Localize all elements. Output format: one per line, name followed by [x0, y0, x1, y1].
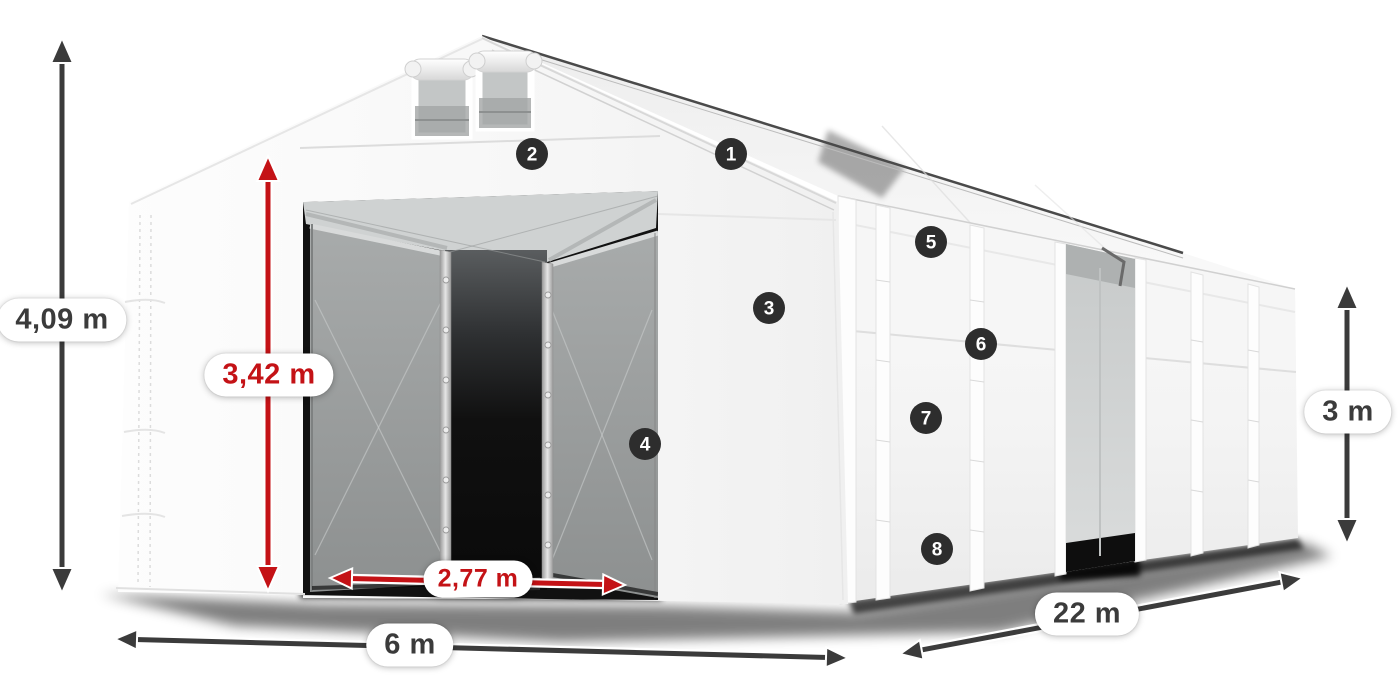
badge-3: 3 — [753, 292, 785, 324]
tent-dimension-diagram: 1 2 3 4 5 6 7 8 — [0, 0, 1400, 700]
badge-3-number: 3 — [764, 299, 775, 320]
badge-4: 4 — [629, 428, 661, 460]
partition-door-right — [547, 231, 658, 598]
front-opening-interior — [300, 185, 662, 605]
tent-side-wall — [838, 196, 1298, 604]
badge-4-number: 4 — [640, 435, 651, 456]
dimension-label-total-height: 4,09 m — [0, 299, 127, 342]
badge-8: 8 — [921, 533, 953, 565]
badge-2-number: 2 — [527, 145, 538, 166]
badge-8-number: 8 — [932, 540, 943, 561]
dimension-label-width: 6 m — [366, 624, 453, 667]
badge-1: 1 — [715, 138, 747, 170]
badge-7: 7 — [910, 402, 942, 434]
dimension-label-entrance-height: 3,42 m — [204, 354, 333, 397]
dimension-label-length: 22 m — [1035, 593, 1139, 636]
tent-illustration: 1 2 3 4 5 6 7 8 — [0, 0, 1400, 700]
dimension-label-side-height: 3 m — [1304, 391, 1391, 434]
interior-center-depth — [445, 250, 547, 590]
partition-door-left — [310, 224, 445, 592]
badge-6-number: 6 — [976, 335, 987, 356]
badge-7-number: 7 — [921, 409, 932, 430]
dimension-label-entrance-width: 2,77 m — [424, 561, 533, 598]
door-pole-right — [542, 262, 553, 580]
gable-window-right — [469, 51, 542, 128]
side-doorway — [1066, 244, 1135, 572]
badge-6: 6 — [965, 328, 997, 360]
door-pole-left — [440, 250, 451, 586]
gable-window-left — [405, 59, 479, 136]
badge-5: 5 — [915, 226, 947, 258]
badge-2: 2 — [516, 138, 548, 170]
badge-5-number: 5 — [926, 233, 937, 254]
badge-1-number: 1 — [726, 145, 737, 166]
